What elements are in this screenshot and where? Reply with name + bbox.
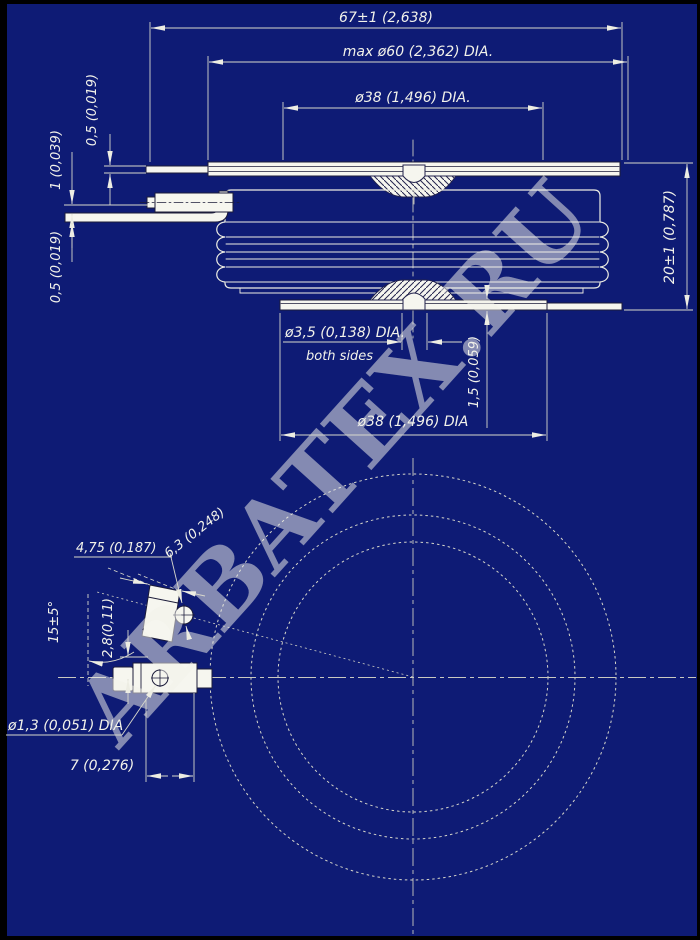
dim-terminal-width-label: 4,75 (0,187)	[76, 541, 156, 556]
dim-terminal-offset-label: 2,8(0,11)	[101, 598, 116, 658]
dim-pole-dia-bottom-label: ø38 (1,496) DIA	[357, 414, 469, 430]
dim-recess-depth-label: 1,5 (0,059)	[467, 336, 482, 408]
anode-plate-lip	[146, 166, 210, 173]
dim-flange-thickness-label: 0,5 (0,019)	[85, 74, 100, 146]
note-gate-hole-label: both sides	[306, 349, 373, 364]
dim-lead-hole-label: ø1,3 (0,051) DIA	[7, 718, 123, 734]
drawing-svg: ARBATEX.RU	[0, 0, 700, 940]
dim-overall-width-label: 67±1 (2,638)	[339, 10, 433, 26]
dim-lead-thickness-label: 1 (0,039)	[49, 130, 64, 190]
dim-body-dia-label: max ø60 (2,362) DIA.	[343, 44, 493, 60]
dim-height-label: 20±1 (0,787)	[662, 190, 678, 284]
dim-terminal-angle-label: 15±5°	[47, 601, 62, 643]
dim-pole-dia-top-label: ø38 (1,496) DIA.	[354, 90, 470, 106]
top-gate-cup	[403, 165, 425, 183]
dim-hole-position-label: 7 (0,276)	[70, 758, 134, 774]
dim-lead-thickness-lower-label: 0,5 (0,019)	[49, 231, 64, 303]
dim-gate-hole-label: ø3,5 (0,138) DIA.	[284, 325, 405, 341]
technical-drawing-page: ARBATEX.RU	[0, 0, 700, 940]
cathode-plate-lip	[547, 303, 622, 310]
